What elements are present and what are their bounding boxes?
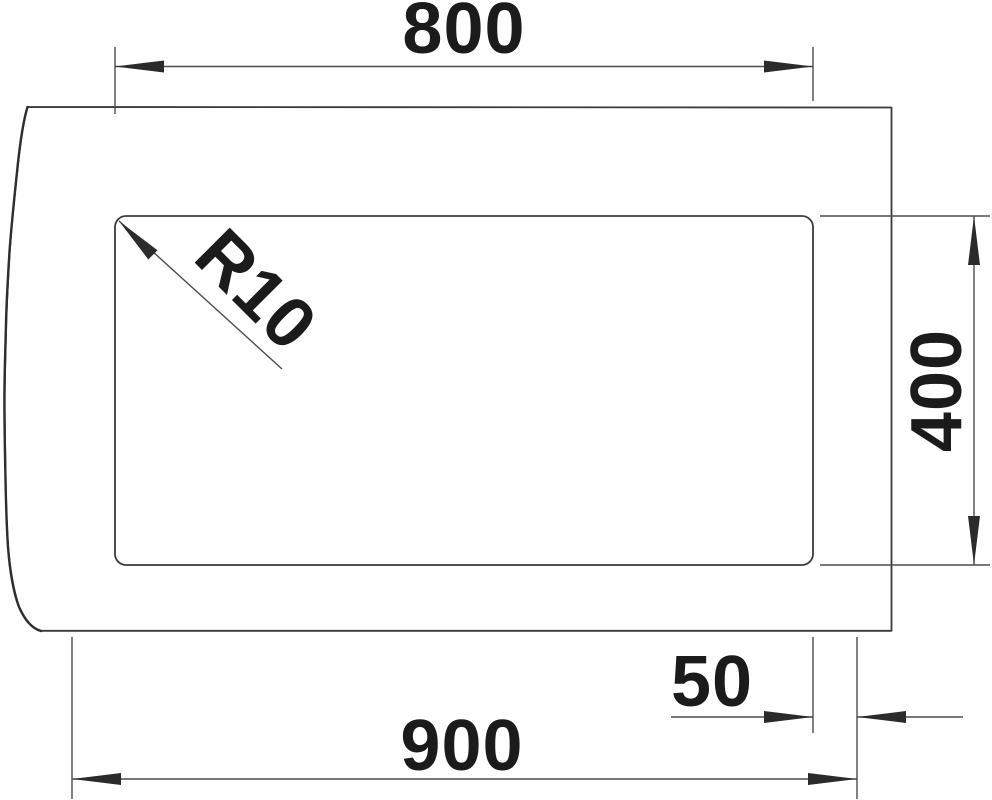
dim-400-label: 400 xyxy=(897,329,977,452)
dim-50-arrowhead-left xyxy=(764,711,813,723)
radius-label: R10 xyxy=(180,214,332,366)
left-edge-sketch-line xyxy=(4,107,41,631)
dim-50-arrowhead-right xyxy=(857,711,906,723)
dim-900-label: 900 xyxy=(400,706,523,786)
dim-900-arrowhead-left xyxy=(72,773,121,785)
drawing-canvas: 800 R10 400 50 900 xyxy=(0,0,992,800)
dim-400-arrowhead-bottom xyxy=(968,516,980,565)
dimension-drawing: 800 R10 400 50 900 xyxy=(0,0,992,800)
dim-900-arrowhead-right xyxy=(808,773,857,785)
dim-50-label: 50 xyxy=(671,642,753,722)
outer-body-outline xyxy=(5,107,892,631)
dim-800-arrowhead-left xyxy=(115,61,164,73)
dim-800-label: 800 xyxy=(402,0,525,69)
radius-leader-arrowhead xyxy=(119,221,158,260)
dim-800-arrowhead-right xyxy=(764,61,813,73)
dim-400-arrowhead-top xyxy=(968,216,980,265)
